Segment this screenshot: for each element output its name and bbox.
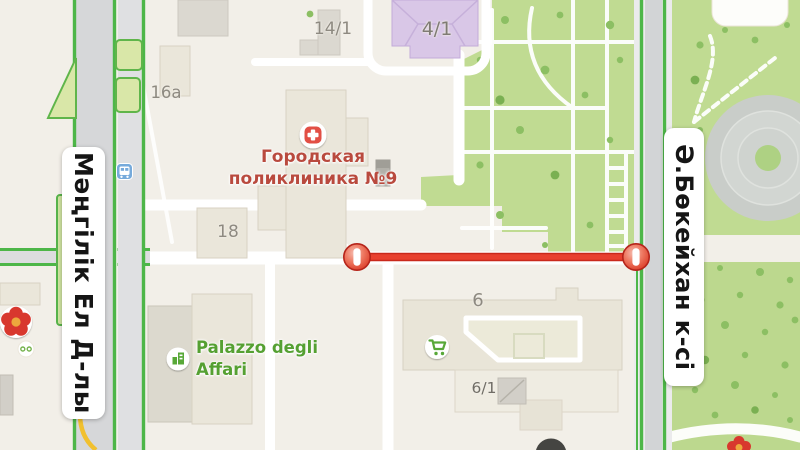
flower-icon[interactable] [0, 306, 32, 338]
map-canvas[interactable]: 14/1 4/1 16a 18 6 6/1 Городская поликлин… [0, 0, 800, 450]
building-label-18: 18 [206, 222, 250, 242]
building-label-6: 6 [456, 290, 500, 311]
poi-polyclinic-label[interactable]: Городская поликлиника №9 [203, 147, 423, 190]
building-label-16a: 16a [144, 83, 188, 102]
no-entry-marker-left[interactable] [344, 244, 370, 270]
office-building-icon[interactable] [167, 348, 190, 371]
building-label-4-1: 4/1 [412, 18, 462, 40]
building-label-6-1: 6/1 [462, 379, 506, 397]
bus-stop-icon[interactable] [117, 164, 133, 180]
shopping-cart-icon[interactable] [425, 335, 449, 359]
poi-palazzo-line2: Affari [196, 359, 346, 381]
poi-polyclinic-line1: Городская [203, 147, 423, 169]
poi-palazzo-label[interactable]: Palazzo degli Affari [196, 337, 346, 381]
no-entry-marker-right[interactable] [623, 244, 649, 270]
street-label-mangilik-el[interactable]: Мәңгілік Ел Д-лы [62, 147, 105, 419]
building-label-14-1: 14/1 [305, 19, 361, 39]
poi-polyclinic-line2: поликлиника №9 [203, 169, 423, 191]
street-label-bokeikhan[interactable]: Ә.Бөкейхан к-сі [664, 128, 704, 386]
hospital-icon[interactable] [300, 122, 327, 149]
playground-dots-icon[interactable] [18, 341, 34, 357]
poi-palazzo-line1: Palazzo degli [196, 337, 346, 359]
